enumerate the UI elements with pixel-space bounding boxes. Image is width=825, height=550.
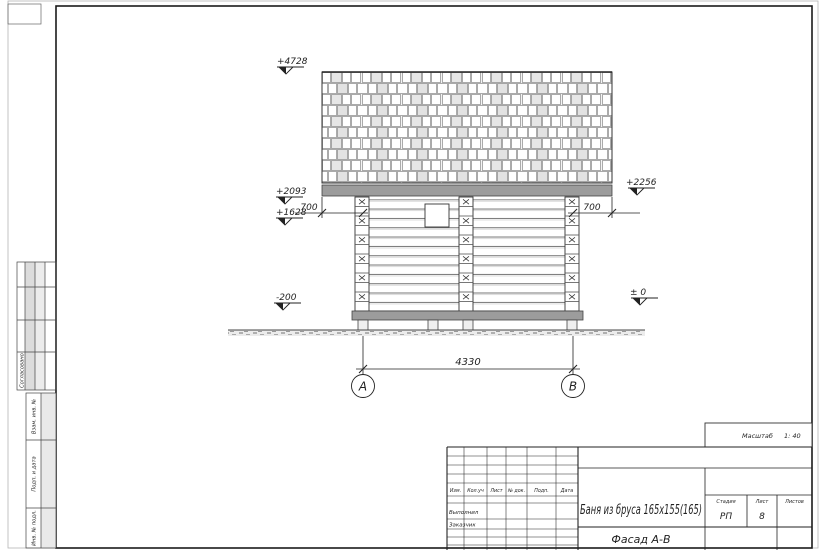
col-list: Лист <box>489 488 502 494</box>
elevation-eaves-left: +2093 <box>276 187 307 197</box>
axis-label-a: А <box>358 380 367 394</box>
foundation-pier <box>463 320 473 331</box>
level-mark-icon <box>628 188 655 195</box>
level-mark-icon <box>274 303 301 310</box>
project-title: Баня из бруса 165х155(165) <box>580 503 702 518</box>
col-ndok: № док. <box>507 488 525 494</box>
elevation-zero: ± 0 <box>630 288 646 298</box>
title-block-texts: Изм. Кол.уч Лист № док. Подп. Дата Выпол… <box>449 488 804 546</box>
replace-inv-label: Взам. инв. № <box>32 399 38 434</box>
sheet-label: Лист <box>755 499 770 505</box>
level-mark-icon <box>276 218 303 225</box>
role-customer: Заказчик <box>449 523 476 529</box>
log-corner-post-middle <box>459 197 473 311</box>
eaves-band <box>322 185 612 196</box>
view-title: Фасад А-В <box>611 533 670 546</box>
sheets-label: Листов <box>784 499 804 505</box>
foundation-pier <box>428 320 438 331</box>
level-mark-icon <box>277 67 304 74</box>
level-mark-icon <box>631 298 658 305</box>
sign-date-label: Подп. и дата <box>32 456 38 491</box>
elevation-ridge: +4728 <box>277 57 308 67</box>
axis-circle-b: В <box>562 375 585 398</box>
log-wall <box>355 197 579 311</box>
scale-value: 1: 40 <box>784 432 801 440</box>
col-izm: Изм. <box>450 488 461 494</box>
foundation-beam <box>352 311 583 320</box>
corner-box <box>8 4 41 24</box>
elevation-base-left: -200 <box>276 293 297 303</box>
foundation <box>352 311 583 331</box>
col-podp: Подп. <box>534 488 549 494</box>
scale-label: Масштаб <box>742 432 773 440</box>
facade-drawing-canvas: Согласовано Взам. инв. № Подп. и дата Ин… <box>0 0 825 550</box>
stage-value: РП <box>720 512 732 522</box>
dim-span: 4330 <box>356 336 580 375</box>
col-koluch: Кол.уч <box>467 488 484 494</box>
agreed-label: Согласовано <box>20 353 26 388</box>
axis-label-b: В <box>569 380 577 394</box>
scale-cell: Масштаб 1: 40 <box>705 423 812 447</box>
dim-700-left: 700 <box>300 203 317 213</box>
inv-orig-label: Инв. № подл. <box>32 510 38 546</box>
role-executor: Выполнил <box>449 510 479 516</box>
drawing-sheet: Согласовано Взам. инв. № Подп. и дата Ин… <box>0 0 825 550</box>
dim-700-right: 700 <box>583 203 600 213</box>
vent-window <box>425 204 449 227</box>
col-data: Дата <box>560 488 573 494</box>
stage-label: Стадия <box>716 499 735 505</box>
sheet-value: 8 <box>759 512 765 522</box>
elevation-eaves-right: +2256 <box>626 178 657 188</box>
foundation-pier <box>358 320 368 331</box>
axis-circle-a: А <box>352 375 375 398</box>
foundation-pier <box>567 320 577 331</box>
dim-4330: 4330 <box>455 357 480 368</box>
roof <box>322 72 612 196</box>
ground-line <box>228 330 645 336</box>
frame-strip <box>26 393 56 548</box>
level-mark-icon <box>276 197 303 204</box>
